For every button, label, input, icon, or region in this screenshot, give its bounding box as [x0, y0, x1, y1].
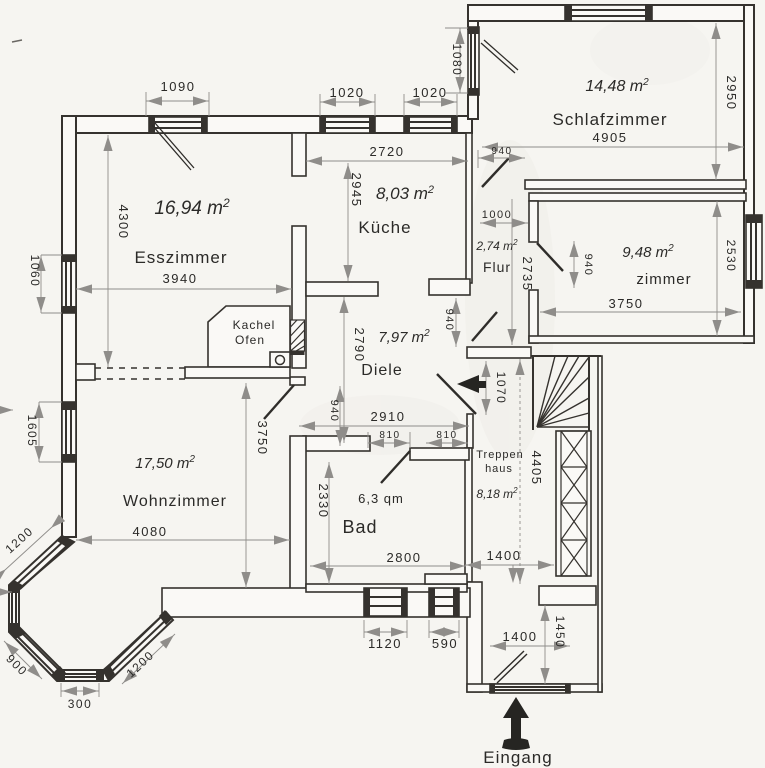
svg-text:16,94 m2: 16,94 m2 — [154, 196, 230, 219]
svg-text:2945: 2945 — [349, 173, 364, 208]
svg-text:zimmer: zimmer — [636, 271, 691, 288]
svg-text:2790: 2790 — [352, 328, 367, 363]
svg-text:4080: 4080 — [133, 524, 168, 539]
svg-text:1070: 1070 — [494, 372, 508, 405]
svg-text:1060: 1060 — [28, 255, 42, 288]
svg-text:2950: 2950 — [724, 76, 739, 111]
svg-text:1090: 1090 — [161, 79, 196, 94]
svg-text:1120: 1120 — [368, 636, 402, 651]
svg-text:1605: 1605 — [25, 415, 39, 448]
svg-text:Schlafzimmer: Schlafzimmer — [553, 110, 668, 129]
svg-text:4300: 4300 — [116, 205, 131, 240]
svg-text:1020: 1020 — [413, 85, 448, 100]
svg-text:2800: 2800 — [387, 550, 422, 565]
svg-text:9,48 m2: 9,48 m2 — [622, 243, 674, 261]
svg-text:Wohnzimmer: Wohnzimmer — [123, 493, 227, 510]
svg-text:7,97 m2: 7,97 m2 — [378, 328, 430, 346]
svg-text:810: 810 — [379, 430, 400, 441]
svg-text:Bad: Bad — [342, 517, 377, 537]
svg-text:Diele: Diele — [361, 362, 402, 379]
svg-text:4405: 4405 — [529, 451, 544, 486]
svg-text:810: 810 — [436, 430, 457, 441]
svg-text:2,74 m2: 2,74 m2 — [475, 238, 518, 253]
svg-text:1000: 1000 — [482, 209, 512, 221]
svg-text:3940: 3940 — [163, 271, 198, 286]
svg-text:1020: 1020 — [330, 85, 365, 100]
svg-text:1080: 1080 — [450, 44, 464, 77]
svg-text:2530: 2530 — [724, 240, 738, 273]
svg-text:940: 940 — [443, 309, 455, 332]
svg-text:6,3 qm: 6,3 qm — [358, 491, 404, 506]
svg-text:Esszimmer: Esszimmer — [134, 248, 227, 267]
svg-text:2720: 2720 — [370, 144, 405, 159]
svg-text:14,48 m2: 14,48 m2 — [585, 77, 649, 95]
svg-text:590: 590 — [432, 636, 458, 651]
svg-text:Treppen: Treppen — [476, 449, 524, 461]
svg-text:2910: 2910 — [371, 409, 406, 424]
svg-text:8,18 m2: 8,18 m2 — [476, 486, 518, 501]
svg-text:2330: 2330 — [316, 484, 331, 519]
svg-text:17,50 m2: 17,50 m2 — [135, 454, 195, 472]
svg-text:1400: 1400 — [503, 629, 538, 644]
svg-text:940: 940 — [491, 146, 512, 157]
svg-text:haus: haus — [485, 463, 513, 475]
svg-text:Flur: Flur — [483, 259, 511, 275]
svg-text:940: 940 — [328, 400, 340, 423]
svg-text:Eingang: Eingang — [483, 748, 552, 767]
svg-text:Kachel: Kachel — [233, 318, 276, 332]
svg-text:8,03 m2: 8,03 m2 — [376, 184, 434, 203]
svg-text:940: 940 — [582, 254, 594, 277]
svg-text:2735: 2735 — [520, 257, 535, 292]
svg-text:Küche: Küche — [358, 218, 411, 237]
svg-text:1400: 1400 — [487, 548, 522, 563]
svg-text:300: 300 — [68, 697, 93, 711]
svg-text:4905: 4905 — [593, 130, 628, 145]
svg-text:3750: 3750 — [255, 421, 270, 456]
svg-text:Ofen: Ofen — [235, 333, 265, 347]
svg-text:1450: 1450 — [553, 616, 567, 649]
svg-text:3750: 3750 — [609, 296, 644, 311]
